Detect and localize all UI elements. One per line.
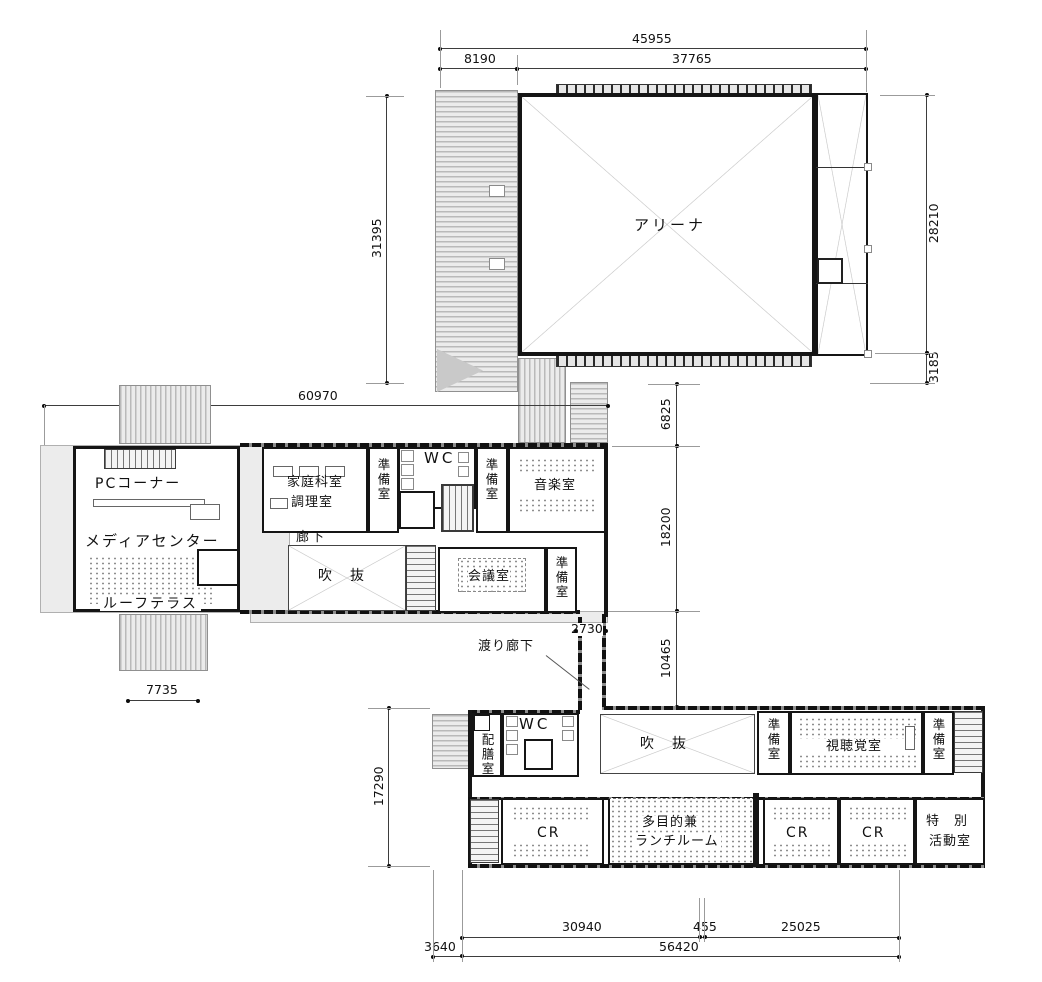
room-label-special1: 特 別 (926, 815, 968, 828)
elevator-shaft (197, 549, 239, 586)
toilet-stall (401, 464, 414, 476)
dim-line-bottom-2 (433, 956, 899, 957)
extension-line (699, 898, 700, 942)
media-table (190, 504, 220, 520)
leader-line (546, 655, 590, 690)
toilet-stall (506, 744, 518, 755)
dim-label-top-seg1: 8190 (464, 53, 496, 66)
room-label-void-upper: 吹 抜 (318, 569, 366, 583)
room-label-corridor: 廊下 (296, 531, 326, 544)
cr1-seating (512, 843, 592, 857)
dim-line-canopy (128, 700, 198, 701)
label-connecting-corridor: 渡り廊下 (478, 640, 534, 653)
wall-column (864, 245, 872, 253)
dim-label-canopy: 7735 (146, 684, 178, 697)
toilet-stall (458, 452, 469, 463)
dim-line-gap-wing-lower (676, 611, 677, 707)
room-label-cr-3: CR (862, 826, 886, 840)
wall-column (864, 163, 872, 171)
room-label-cr-2: CR (786, 826, 810, 840)
dim-label-arena-right: 28210 (928, 193, 941, 253)
room-label-music: 音楽室 (534, 479, 576, 492)
room-label-serving: 配膳室 (480, 733, 493, 777)
room-multipurpose (608, 798, 755, 865)
dim-label-arena-left: 31395 (371, 208, 384, 268)
kitchen-unit (270, 498, 288, 509)
room-label-av: 視聴覚室 (826, 740, 882, 753)
dim-line-arena-left (386, 96, 387, 383)
extension-line (440, 30, 441, 88)
room-label-meeting: 会議室 (468, 570, 510, 583)
toilet-stall (562, 730, 574, 741)
extension-line (366, 96, 404, 97)
dim-label-bottom-seg1: 30940 (562, 921, 602, 934)
extension-line (866, 30, 867, 92)
extension-line (462, 870, 463, 962)
south-canopy (119, 614, 208, 671)
corridor-ramp-deck (570, 382, 608, 443)
deck-fixture (489, 185, 505, 197)
music-seating (518, 458, 596, 474)
deck-fixture (489, 258, 505, 270)
cr1-seating (512, 806, 592, 822)
dim-line-bottom-1 (462, 937, 899, 938)
room-special-activity (915, 798, 985, 865)
room-label-special2: 活動室 (929, 835, 971, 848)
av-seating (798, 717, 916, 739)
cr3-seating (848, 843, 906, 857)
toilet-stall (562, 716, 574, 727)
dim-line-top-total (440, 48, 866, 49)
wall-column (864, 350, 872, 358)
extension-line (612, 446, 700, 447)
arena-stage-wing (816, 93, 868, 356)
extension-line (368, 866, 430, 867)
extension-line (44, 405, 45, 445)
room-label-void-lower: 吹 抜 (640, 737, 688, 751)
wing-stair (406, 545, 436, 611)
dim-label-top-seg2: 37765 (672, 53, 712, 66)
room-label-prep-4: 準備室 (766, 718, 779, 762)
extension-line (880, 95, 935, 96)
room-label-multipurpose1: 多目的兼 (640, 816, 700, 829)
room-label-home-ec1: 家庭科室 (287, 476, 343, 489)
av-seating (798, 754, 916, 768)
av-podium (905, 726, 915, 750)
room-label-wc-lower: WC (519, 717, 550, 732)
wc-shaft (524, 739, 553, 770)
dim-label-arena-right-small: 3185 (928, 337, 941, 397)
toilet-stall (401, 450, 414, 462)
room-label-media-center: メディアセンター (85, 534, 220, 549)
arena-west-deck (435, 90, 518, 392)
dim-label-bottom-total: 56420 (659, 941, 699, 954)
room-label-arena: アリーナ (634, 218, 706, 233)
toilet-stall (401, 478, 414, 490)
room-label-prep-1: 準備室 (376, 458, 389, 502)
dim-label-mid-width: 60970 (298, 390, 338, 403)
lower-north-wall-right (604, 706, 985, 710)
extension-line (875, 353, 935, 354)
extension-line (870, 383, 935, 384)
room-label-prep-2: 準備室 (484, 458, 497, 502)
dim-label-gap-arena-wing: 6825 (660, 389, 673, 439)
room-label-roof-terrace: ルーフテラス (100, 597, 201, 611)
dim-label-gap-wing-lower: 10465 (660, 628, 673, 688)
dim-tick (604, 629, 608, 633)
dim-line-lower-left (388, 708, 389, 866)
media-entry-stair (104, 449, 176, 469)
dim-label-wing-height: 18200 (660, 497, 673, 557)
extension-line (704, 898, 705, 942)
north-canopy (119, 385, 211, 444)
room-label-multipurpose2: ランチルーム (633, 835, 721, 848)
floor-plan-canvas: 45955 8190 37765 アリーナ 31395 28210 3185 6… (0, 0, 1042, 982)
expansion-joint-wall (753, 793, 759, 867)
room-home-ec (262, 447, 368, 533)
dim-line-wing-height (676, 446, 677, 611)
arena-south-louver (556, 355, 812, 367)
service-shaft (441, 484, 474, 532)
room-label-pc-corner: PCコーナー (95, 477, 181, 491)
dumbwaiter (474, 715, 490, 731)
dim-label-bottom-offset: 3640 (424, 941, 456, 954)
media-counter (93, 499, 205, 507)
extension-line (648, 384, 700, 385)
toilet-stall (506, 730, 518, 741)
dim-line-top-seg2 (517, 68, 866, 69)
dim-label-lower-left: 17290 (373, 756, 386, 816)
dim-tick (574, 629, 578, 633)
arena-south-deck (518, 358, 566, 443)
dim-line-top-seg1 (440, 68, 517, 69)
southwest-stair (470, 799, 499, 863)
toilet-stall (506, 716, 518, 727)
room-label-wc-upper: WC (424, 451, 455, 466)
east-stair (954, 711, 983, 773)
extension-line (517, 55, 518, 85)
room-label-home-ec2: 調理室 (291, 496, 333, 509)
extension-line (368, 708, 430, 709)
dim-line-gap-arena-wing (676, 384, 677, 446)
dim-label-top-total: 45955 (632, 33, 672, 46)
cr3-seating (848, 806, 906, 822)
room-label-cr-1: CR (537, 826, 561, 840)
toilet-stall (458, 466, 469, 477)
music-seating (518, 498, 596, 514)
extension-line (899, 870, 900, 962)
elevator-shaft (399, 491, 435, 529)
cr2-seating (772, 843, 830, 857)
cr2-seating (772, 806, 830, 822)
room-label-prep-3: 準備室 (554, 556, 567, 600)
room-label-prep-5: 準備室 (931, 718, 944, 762)
extension-line (433, 870, 434, 962)
stage-partition (816, 167, 868, 168)
dim-label-bottom-seg3: 25025 (781, 921, 821, 934)
extension-line (366, 383, 404, 384)
lower-west-deck (432, 714, 469, 769)
stage-closet (817, 258, 843, 284)
